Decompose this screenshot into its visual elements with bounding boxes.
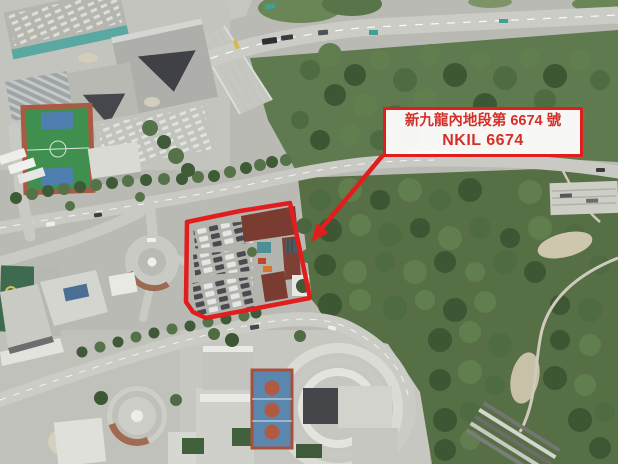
football-pitch — [20, 103, 95, 195]
aerial-map-figure: 新九龍內地段第 6674 號 NKIL 6674 — [0, 0, 618, 464]
lot-label-chinese: 新九龍內地段第 6674 號 — [405, 114, 561, 130]
road-sign-green — [499, 19, 508, 23]
road-sign-green — [369, 30, 378, 35]
satellite-imagery — [0, 0, 618, 464]
basketball-courts — [252, 370, 292, 448]
lot-label-callout: 新九龍內地段第 6674 號 NKIL 6674 — [383, 107, 583, 157]
lot-label-english: NKIL 6674 — [442, 132, 524, 150]
